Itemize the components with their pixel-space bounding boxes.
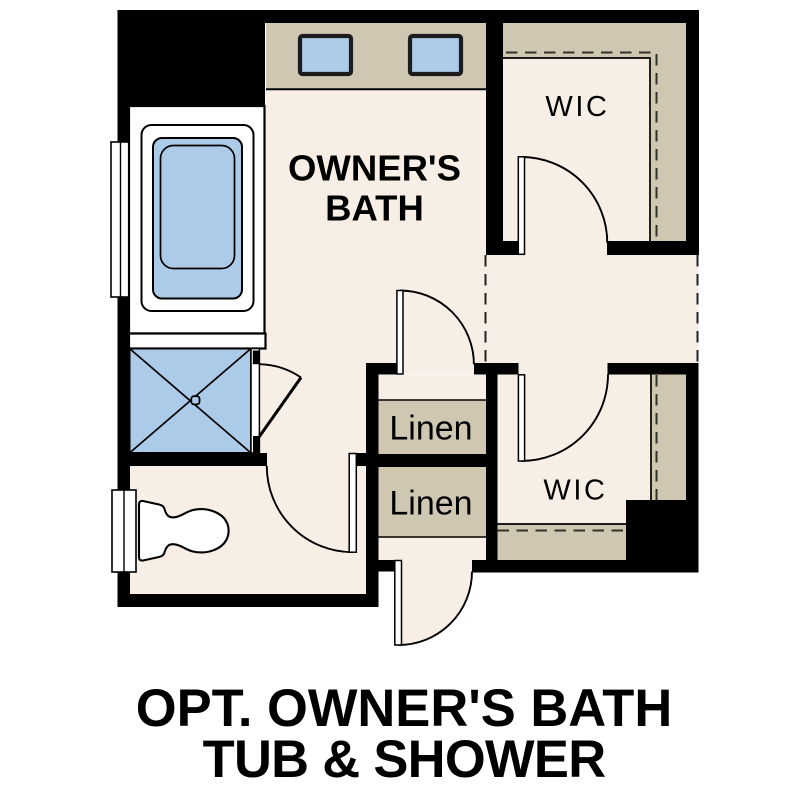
svg-text:Linen: Linen [389, 410, 472, 448]
svg-text:WIC: WIC [545, 91, 609, 123]
svg-text:BATH: BATH [325, 188, 424, 229]
svg-text:TUB & SHOWER: TUB & SHOWER [203, 730, 606, 789]
svg-text:OWNER'S: OWNER'S [288, 148, 461, 189]
svg-text:WIC: WIC [543, 475, 607, 507]
svg-text:Linen: Linen [389, 485, 472, 523]
